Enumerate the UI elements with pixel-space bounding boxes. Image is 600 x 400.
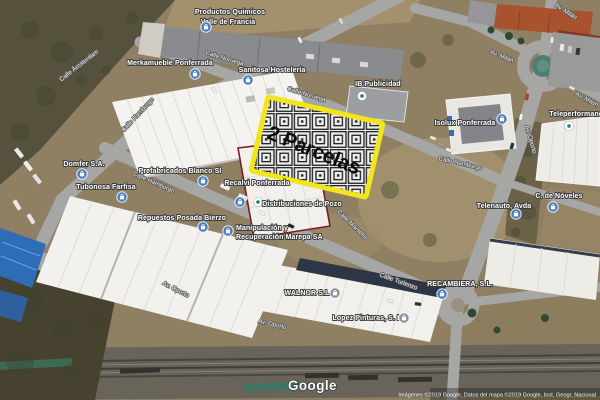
- svg-text:Repuestos Posada Bierzo: Repuestos Posada Bierzo: [138, 215, 226, 222]
- svg-text:Teleperformance: Teleperformance: [549, 111, 600, 118]
- shopping-pin-icon: [511, 209, 521, 219]
- place-pin-icon: [564, 121, 573, 130]
- svg-text:IB Publicidad: IB Publicidad: [355, 81, 401, 88]
- satellite-map-view: 2 Parcelas Calle Ámsterdam Calle Hamburg…: [0, 0, 600, 400]
- shopping-pin-icon: [330, 288, 340, 298]
- svg-text:WALNOR S.L.: WALNOR S.L.: [285, 290, 332, 297]
- svg-text:Prefabricados Blanco Sl: Prefabricados Blanco Sl: [139, 168, 222, 175]
- svg-text:Recuperación Marepa SA: Recuperación Marepa SA: [236, 234, 323, 241]
- svg-text:Distribuciones de Pozo: Distribuciones de Pozo: [262, 201, 342, 208]
- map-canvas[interactable]: 2 Parcelas Calle Ámsterdam Calle Hamburg…: [0, 0, 600, 400]
- place-pin-icon: [357, 91, 366, 100]
- shopping-pin-icon: [437, 289, 447, 299]
- shopping-pin-icon: [198, 222, 208, 232]
- shopping-pin-icon: [190, 69, 200, 79]
- svg-text:Sanitosa Hostelería: Sanitosa Hostelería: [239, 67, 306, 74]
- shopping-pin-icon: [235, 197, 245, 207]
- shopping-pin-icon: [77, 169, 87, 179]
- poi-walnor[interactable]: WALNOR S.L.: [285, 288, 341, 298]
- svg-text:Domfer S.A.: Domfer S.A.: [63, 161, 104, 168]
- shopping-pin-icon: [243, 75, 253, 85]
- svg-text:Productos Químicos: Productos Químicos: [195, 9, 265, 16]
- shopping-pin-icon: [223, 226, 233, 236]
- shopping-pin-icon: [497, 114, 507, 124]
- shopping-pin-icon: [399, 313, 409, 323]
- shopping-pin-icon: [117, 192, 127, 202]
- svg-text:Manipulación y: Manipulación y: [236, 225, 288, 232]
- svg-text:C. de Nóveles: C. de Nóveles: [535, 193, 582, 200]
- shopping-pin-icon: [198, 176, 208, 186]
- svg-text:Recalvi Ponferrada: Recalvi Ponferrada: [224, 180, 289, 187]
- poi-lopez-pinturas[interactable]: Lopez Pinturas, S. L.: [333, 313, 410, 323]
- svg-text:Lopez Pinturas, S. L.: Lopez Pinturas, S. L.: [333, 315, 404, 322]
- svg-text:RECAMBIERA, S.L.: RECAMBIERA, S.L.: [427, 281, 493, 288]
- shopping-pin-icon: [201, 22, 211, 32]
- shopping-pin-icon: [548, 202, 558, 212]
- svg-text:Merkamueble Ponferrada: Merkamueble Ponferrada: [127, 60, 213, 67]
- svg-text:Tubonosa Farfisa: Tubonosa Farfisa: [76, 184, 135, 191]
- svg-text:Telenauto, Avda: Telenauto, Avda: [477, 203, 532, 210]
- svg-text:Isolux Ponferrada: Isolux Ponferrada: [435, 120, 496, 127]
- google-logo[interactable]: Google: [288, 378, 337, 393]
- attribution-text: Imágenes ©2019 Google, Datos del mapa ©2…: [398, 392, 596, 399]
